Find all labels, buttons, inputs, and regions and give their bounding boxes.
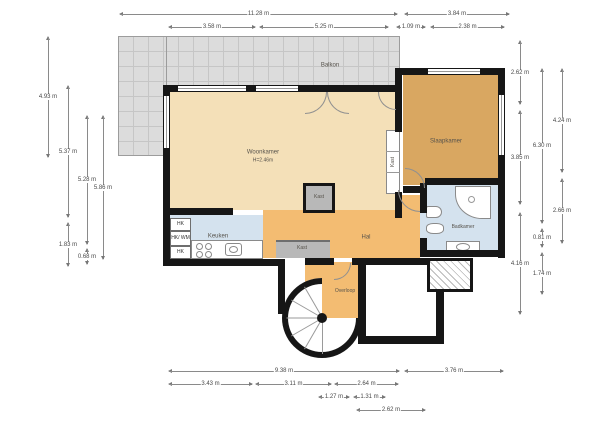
kitchen-sink-bowl [229,246,238,253]
dim-left-4: 5.28 m [83,115,91,245]
dim-right-7: 4.24 m [558,68,566,173]
stove-burner [205,243,212,250]
room-label-woonkamer-text: Woonkamer [247,150,279,156]
dim-top-seg2: 5.25 m [259,23,389,31]
dim-right-5: 0.81 m [538,228,546,248]
dim-right-2: 3.85 m [516,110,524,205]
wall [278,259,285,314]
dim-right-3: 4.16 m [516,212,524,315]
window [428,69,480,74]
dim-top-total-right: 3.84 m [404,10,510,18]
closet-hk-wm: HK/ WM [170,231,191,246]
room-label-badkamer: Badkamer [452,224,475,230]
dim-bottom-seg1: 3.43 m [168,380,253,388]
wall [395,92,402,132]
room-label-hal: Hal [361,234,370,242]
stair-tread [322,318,323,354]
window [499,95,504,155]
room-label-balkon: Balkon [321,62,339,70]
stair-opening [322,278,362,318]
dim-bottom-total-left: 9.38 m [168,367,400,375]
wall [305,258,334,265]
dim-right-1: 2.62 m [516,40,524,105]
toilet [426,206,442,218]
room-label-keuken: Keuken [208,233,228,241]
dim-left-1: 4.93 m [44,36,52,158]
stove-burner [196,243,203,250]
wardrobe-divider [386,172,400,173]
room-label-kast-wardrobe: Kast [390,157,396,167]
window [178,86,246,91]
stove-burner [205,251,212,258]
dim-right-4: 6.30 m [538,68,546,224]
dim-left-3: 1.83 m [64,222,72,267]
room-label-slaapkamer: Slaapkamer [430,138,462,146]
dim-left-5: 0.68 m [83,248,91,265]
bathroom-sink [426,223,444,234]
room-label-woonkamer: Woonkamer H=2.46m [247,150,279,165]
shower-drain [468,196,475,203]
dim-top-seg4: 2.38 m [430,23,505,31]
dim-left-6: 5.86 m [99,115,107,260]
wardrobe-divider [386,151,400,152]
dim-bottom-total-right: 3.76 m [404,367,504,375]
dim-bottom-stair2: 1.31 m [353,393,386,401]
dim-bottom-stair-total: 2.62 m [356,406,426,414]
room-label-ceiling-height: H=2.46m [253,157,273,163]
wall [163,208,233,215]
stove-burner [196,251,203,258]
room-label-overloop: Overloop [335,288,355,294]
dim-bottom-stair1: 1.27 m [318,393,350,401]
stair-center-post [317,313,327,323]
room-woonkamer [170,92,395,210]
window [256,86,298,91]
wall [163,259,285,266]
dim-bottom-seg2: 3.11 m [255,380,332,388]
balcony-floor-left [118,37,167,156]
wall [358,336,444,344]
dim-top-seg1: 3.58 m [168,23,256,31]
room-slaapkamer [403,75,498,185]
closet-hk-bottom: HK [170,246,191,259]
dim-bottom-seg3: 2.64 m [334,380,399,388]
wall [420,250,505,257]
dim-right-8: 2.66 m [558,178,566,244]
dim-top-seg3: 1.09 m [396,23,426,31]
wall [425,178,498,185]
dim-right-6: 1.74 m [538,252,546,295]
shaft-hatch [427,258,473,292]
wall [358,262,366,344]
window [164,96,169,148]
dim-left-2: 5.37 m [64,85,72,218]
floor-plan: 11.28 m 3.84 m 3.58 m 5.25 m 1.09 m 2.38… [0,0,600,424]
room-label-kast-cabinet: Kast [297,245,307,251]
room-label-kast-square: Kast [314,194,324,200]
wall [436,290,444,344]
dim-top-total-left: 11.28 m [119,10,398,18]
closet-hk-top: HK [170,218,191,231]
